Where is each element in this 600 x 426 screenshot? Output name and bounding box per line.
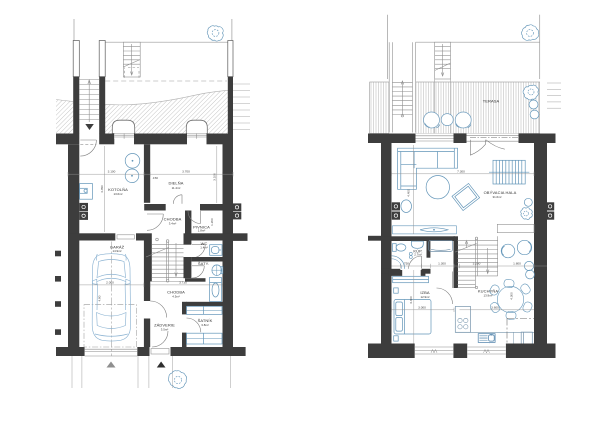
svg-text:.750: .750 [403,262,409,266]
svg-text:3.000: 3.000 [418,305,426,309]
svg-text:3.200: 3.200 [473,262,481,266]
svg-text:TERASA: TERASA [483,98,500,103]
svg-text:4.5m²: 4.5m² [172,295,179,299]
svg-text:3.600: 3.600 [491,305,499,309]
svg-text:4.400: 4.400 [407,189,411,197]
svg-text:4.450: 4.450 [100,185,104,193]
svg-text:4.300: 4.300 [510,292,514,300]
svg-text:1.200: 1.200 [210,218,214,226]
svg-text:.150: .150 [152,176,158,180]
svg-text:1.8m²: 1.8m² [198,228,205,232]
svg-text:2.000: 2.000 [106,280,114,284]
svg-text:2.7m²: 2.7m² [414,253,421,257]
svg-text:3.700: 3.700 [182,170,190,174]
svg-text:ŠATY.: ŠATY. [198,261,209,266]
svg-text:3.100: 3.100 [213,173,217,181]
svg-text:13.6m²: 13.6m² [114,192,123,196]
svg-text:3.5m²: 3.5m² [161,328,168,332]
svg-text:3.730: 3.730 [179,280,187,284]
svg-text:31.6m²: 31.6m² [493,195,502,199]
svg-text:11.4m²: 11.4m² [172,186,181,190]
svg-text:4.80: 4.80 [97,295,101,301]
svg-text:1.800: 1.800 [513,262,521,266]
svg-text:13.9m²: 13.9m² [484,294,493,298]
svg-text:DIELŇA: DIELŇA [168,181,183,186]
svg-text:14.9m²: 14.9m² [113,249,122,253]
svg-text:12.9m²: 12.9m² [421,295,430,299]
svg-text:3.100: 3.100 [108,170,116,174]
svg-text:1.300: 1.300 [438,262,446,266]
svg-text:3.4m²: 3.4m² [169,222,176,226]
svg-text:3.400: 3.400 [409,296,413,304]
svg-text:1.4m²: 1.4m² [200,246,207,250]
svg-text:7.300: 7.300 [457,169,465,173]
svg-text:3.8m²: 3.8m² [201,323,208,327]
